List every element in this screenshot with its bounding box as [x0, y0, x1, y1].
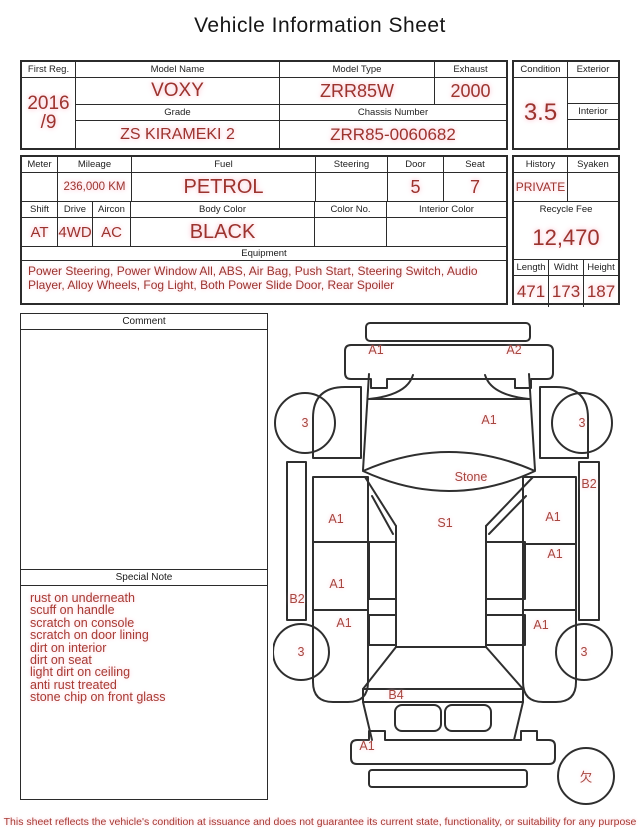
grade-label: Grade — [76, 105, 280, 121]
diagram-label-right-quarter-panel: A1 — [533, 618, 548, 632]
history-fee-table: History Syaken PRIVATE Recycle Fee 12,47… — [512, 155, 620, 305]
chassis-number-label: Chassis Number — [280, 105, 506, 121]
syaken-label: Syaken — [568, 157, 618, 173]
spec-table: Meter Mileage Fuel Steering Door Seat 23… — [20, 155, 508, 305]
diagram-label-spare-missing: 欠 — [580, 767, 593, 786]
condition-table: Condition 3.5 Exterior Interior — [512, 60, 620, 150]
seat-value: 7 — [444, 173, 506, 202]
equipment-label: Equipment — [22, 247, 506, 261]
color-no-label: Color No. — [315, 202, 387, 218]
damage-diagram: A1A233A1StoneB2S1A1A1A1A1B2A1A133B4A1欠 — [273, 312, 633, 812]
first-reg-label: First Reg. — [22, 62, 76, 78]
diagram-label-windshield: Stone — [455, 470, 488, 484]
diagram-label-right-front-door: A1 — [545, 510, 560, 524]
recycle-fee-label: Recycle Fee — [514, 202, 618, 217]
special-note-line: light dirt on ceiling — [30, 666, 258, 678]
diagram-label-front-right-wheel: 3 — [579, 416, 586, 430]
mileage-label: Mileage — [58, 157, 132, 173]
diagram-label-front-bumper-right: A2 — [506, 343, 521, 357]
width-label: Widht — [549, 260, 584, 276]
meter-label: Meter — [22, 157, 58, 173]
history-label: History — [514, 157, 568, 173]
syaken-value — [568, 173, 618, 202]
mileage-value: 236,000 KM — [58, 173, 132, 202]
diagram-label-rear-window: B4 — [388, 688, 403, 702]
meter-value — [22, 173, 58, 202]
diagram-label-front-left-wheel: 3 — [302, 416, 309, 430]
height-value: 187 — [584, 276, 618, 307]
special-note-list: rust on underneathscuff on handlescratch… — [21, 586, 267, 799]
length-value: 471 — [514, 276, 549, 307]
seat-label: Seat — [444, 157, 506, 173]
drive-value: 4WD — [58, 218, 93, 247]
model-name-value: VOXY — [76, 78, 280, 105]
diagram-label-rear-left-wheel: 3 — [298, 645, 305, 659]
shift-label: Shift — [22, 202, 58, 218]
chassis-number-value: ZRR85-0060682 — [280, 121, 506, 148]
diagram-label-left-slide-door: A1 — [329, 577, 344, 591]
door-value: 5 — [388, 173, 444, 202]
fuel-value: PETROL — [132, 173, 316, 202]
model-name-label: Model Name — [76, 62, 280, 78]
body-color-label: Body Color — [131, 202, 315, 218]
diagram-label-left-sill: B2 — [289, 592, 304, 606]
steering-label: Steering — [316, 157, 388, 173]
steering-value — [316, 173, 388, 202]
comment-label: Comment — [21, 314, 267, 330]
diagram-label-front-bumper-left: A1 — [368, 343, 383, 357]
history-value: PRIVATE — [514, 173, 568, 202]
diagram-label-right-slide-door: A1 — [547, 547, 562, 561]
diagram-label-right-sill: B2 — [581, 477, 596, 491]
diagram-label-cowl-right: A1 — [481, 413, 496, 427]
condition-value: 3.5 — [514, 78, 568, 148]
height-label: Height — [584, 260, 618, 276]
interior-color-value — [387, 218, 506, 247]
grade-value: ZS KIRAMEKI 2 — [76, 121, 280, 148]
vehicle-information-sheet: Vehicle Information Sheet First Reg. 201… — [0, 0, 640, 835]
special-note-label: Special Note — [21, 569, 267, 586]
recycle-fee-value: 12,470 — [514, 217, 618, 260]
diagram-label-roof: S1 — [437, 516, 452, 530]
model-type-label: Model Type — [280, 62, 435, 78]
condition-label: Condition — [514, 62, 568, 78]
drive-label: Drive — [58, 202, 93, 218]
page-title: Vehicle Information Sheet — [0, 14, 640, 38]
first-reg-value: 2016 /9 — [22, 78, 76, 148]
shift-value: AT — [22, 218, 58, 247]
interior-value — [568, 120, 618, 148]
fuel-label: Fuel — [132, 157, 316, 173]
comment-box: Comment Special Note rust on underneaths… — [20, 313, 268, 800]
diagram-labels-layer: A1A233A1StoneB2S1A1A1A1A1B2A1A133B4A1欠 — [273, 312, 633, 812]
aircon-value: AC — [93, 218, 131, 247]
diagram-label-rear-right-wheel: 3 — [581, 645, 588, 659]
model-type-value: ZRR85W — [280, 78, 435, 105]
diagram-label-left-quarter-panel: A1 — [336, 616, 351, 630]
exhaust-label: Exhaust — [435, 62, 506, 78]
disclaimer: This sheet reflects the vehicle's condit… — [0, 816, 640, 828]
aircon-label: Aircon — [93, 202, 131, 218]
exhaust-value: 2000 — [435, 78, 506, 105]
special-note-line: scratch on door lining — [30, 629, 258, 641]
length-label: Length — [514, 260, 549, 276]
door-label: Door — [388, 157, 444, 173]
identity-table: First Reg. 2016 /9 Model Name Model Type… — [20, 60, 508, 150]
special-note-line: scuff on handle — [30, 604, 258, 616]
diagram-label-rear-bumper-left: A1 — [359, 739, 374, 753]
special-note-line: stone chip on front glass — [30, 691, 258, 703]
exterior-value — [568, 78, 618, 104]
interior-label: Interior — [568, 104, 618, 120]
body-color-value: BLACK — [131, 218, 315, 247]
color-no-value — [315, 218, 387, 247]
exterior-label: Exterior — [568, 62, 618, 78]
comment-value — [21, 330, 267, 569]
interior-color-label: Interior Color — [387, 202, 506, 218]
width-value: 173 — [549, 276, 584, 307]
diagram-label-left-front-door: A1 — [328, 512, 343, 526]
equipment-value: Power Steering, Power Window All, ABS, A… — [22, 261, 506, 303]
